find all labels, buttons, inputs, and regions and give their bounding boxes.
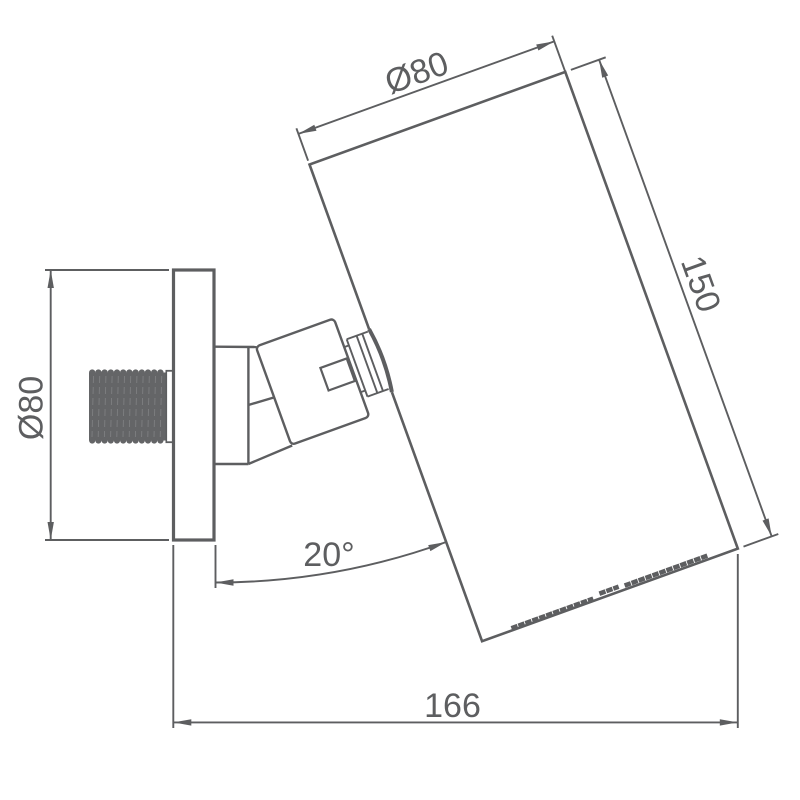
svg-text:Ø80: Ø80 (13, 376, 51, 440)
svg-text:166: 166 (424, 687, 481, 725)
svg-text:20°: 20° (303, 536, 354, 574)
